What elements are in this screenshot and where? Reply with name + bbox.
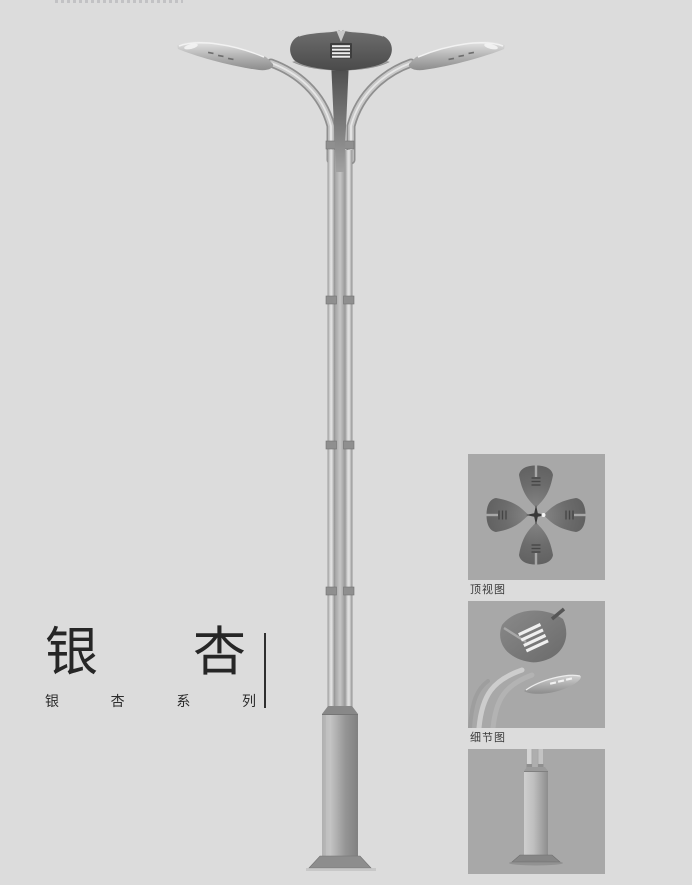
top-view-highlight-dot: [542, 513, 546, 517]
subtitle-char: 列: [242, 691, 256, 711]
crown-louver-panel: [330, 43, 352, 59]
lamp-head-left: [177, 42, 273, 71]
base-view-column: [524, 767, 548, 855]
panel-label-closeup: 细节图: [470, 731, 605, 745]
pole-right-tube: [345, 150, 353, 716]
closeup-ginkgo-leaf: [500, 609, 566, 662]
closeup-thumbnail: [468, 601, 605, 728]
pole: [326, 141, 354, 716]
title-divider-line: [264, 633, 266, 708]
subtitle-char: 系: [176, 691, 190, 711]
title-char: 杏: [193, 624, 246, 682]
pole-joint-band: [326, 587, 337, 595]
detail-panels: 顶视图: [468, 454, 605, 874]
detail-panel-base: [468, 749, 605, 874]
pole-joint-band: [344, 296, 355, 304]
top-view-thumbnail: [468, 454, 605, 580]
pole-joint-band: [326, 441, 337, 449]
lamp-crown-ornament: [290, 30, 392, 71]
pole-center-tube: [335, 150, 345, 716]
base-plate: [309, 856, 371, 868]
page-subtitle: 银 杏 系 列: [45, 691, 256, 711]
closeup-lamp-head: [524, 675, 581, 694]
subtitle-char: 杏: [111, 691, 125, 711]
pole-joint-band: [344, 441, 355, 449]
base-view-plate: [509, 855, 563, 866]
page-title: 银 杏: [45, 624, 246, 682]
title-block: 银 杏 银 杏 系 列: [45, 624, 275, 711]
subtitle-char: 银: [45, 691, 59, 711]
pole-joint-band: [326, 296, 337, 304]
detail-panel-closeup: [468, 601, 605, 728]
title-char: 银: [45, 624, 98, 682]
base-shadow: [306, 868, 376, 871]
catalog-page: 银 杏 银 杏 系 列: [0, 0, 692, 885]
detail-panel-top-view: [468, 454, 605, 580]
pole-joint-band: [344, 587, 355, 595]
ginkgo-petal: [519, 466, 553, 509]
pole-base-column: [306, 706, 376, 871]
panel-label-top-view: 顶视图: [470, 583, 605, 597]
pole-left-tube: [328, 150, 336, 716]
closeup-arm-tubes: [470, 670, 532, 728]
base-thumbnail: [468, 749, 605, 874]
